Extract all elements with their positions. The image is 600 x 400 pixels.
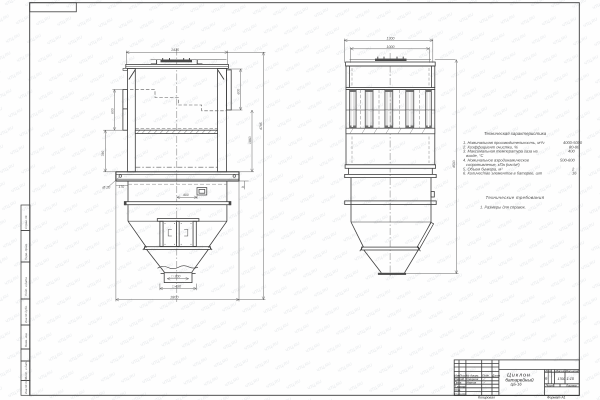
svg-text:1800: 1800	[170, 295, 179, 299]
svg-text:Технические требования: Технические требования	[486, 195, 545, 200]
svg-text:Перв. прим.: Перв. прим.	[24, 243, 28, 260]
svg-text:Дата: Дата	[491, 373, 500, 377]
svg-text:1415: 1415	[171, 48, 179, 52]
svg-text:Иванов: Иванов	[466, 381, 476, 385]
svg-text:600: 600	[110, 108, 114, 114]
svg-text:Подп. и дата: Подп. и дата	[24, 360, 28, 379]
svg-text:Масса: Масса	[556, 369, 565, 373]
svg-text:1860: 1860	[248, 136, 252, 144]
svg-text:Ø 20: Ø 20	[102, 186, 111, 190]
svg-text:Справ. №: Справ. №	[24, 215, 28, 229]
svg-text:4500: 4500	[452, 160, 456, 168]
svg-text:Взам. инв.: Взам. инв.	[24, 332, 28, 347]
svg-text:500-600: 500-600	[560, 158, 575, 163]
svg-text:6. Количество элементов в б: 6. Количество элементов в батарее, шт	[463, 171, 543, 176]
svg-text:Формат А1: Формат А1	[547, 396, 566, 400]
svg-text:780: 780	[101, 151, 105, 157]
svg-text:40: 40	[241, 185, 245, 189]
svg-text:16: 16	[572, 171, 577, 176]
svg-text:400: 400	[568, 149, 575, 154]
svg-text:Подп. и дата: Подп. и дата	[24, 277, 28, 296]
svg-text:□ 300: □ 300	[171, 275, 180, 279]
svg-text:Инв.№ дубл.: Инв.№ дубл.	[24, 305, 28, 323]
svg-text:1300: 1300	[387, 36, 395, 40]
svg-text:400: 400	[183, 193, 189, 197]
svg-text:Лист: Лист	[545, 384, 554, 388]
svg-text:Техническая характеристика: Техническая характеристика	[484, 131, 547, 136]
svg-text:170: 170	[119, 185, 125, 189]
svg-text:1:10: 1:10	[567, 377, 575, 381]
svg-text:Утв.: Утв.	[454, 388, 461, 392]
svg-text:□ 450: □ 450	[172, 285, 181, 289]
svg-text:ЦБ-16: ЦБ-16	[511, 381, 523, 386]
svg-text:1000: 1000	[387, 45, 395, 49]
svg-text:Копировал: Копировал	[478, 396, 495, 400]
svg-text:Листов: Листов	[565, 384, 577, 388]
svg-text:Масштаб: Масштаб	[566, 369, 580, 373]
svg-text:600: 600	[236, 89, 240, 95]
svg-text:1700: 1700	[558, 377, 566, 381]
svg-text:Инв.№ подл.: Инв.№ подл.	[24, 376, 28, 394]
svg-text:Н.контр.: Н.контр.	[454, 392, 466, 396]
svg-text:1. Размеры для справок.: 1. Размеры для справок.	[480, 204, 526, 209]
svg-text:4785: 4785	[259, 122, 263, 130]
svg-text:Лит.: Лит.	[544, 369, 552, 373]
